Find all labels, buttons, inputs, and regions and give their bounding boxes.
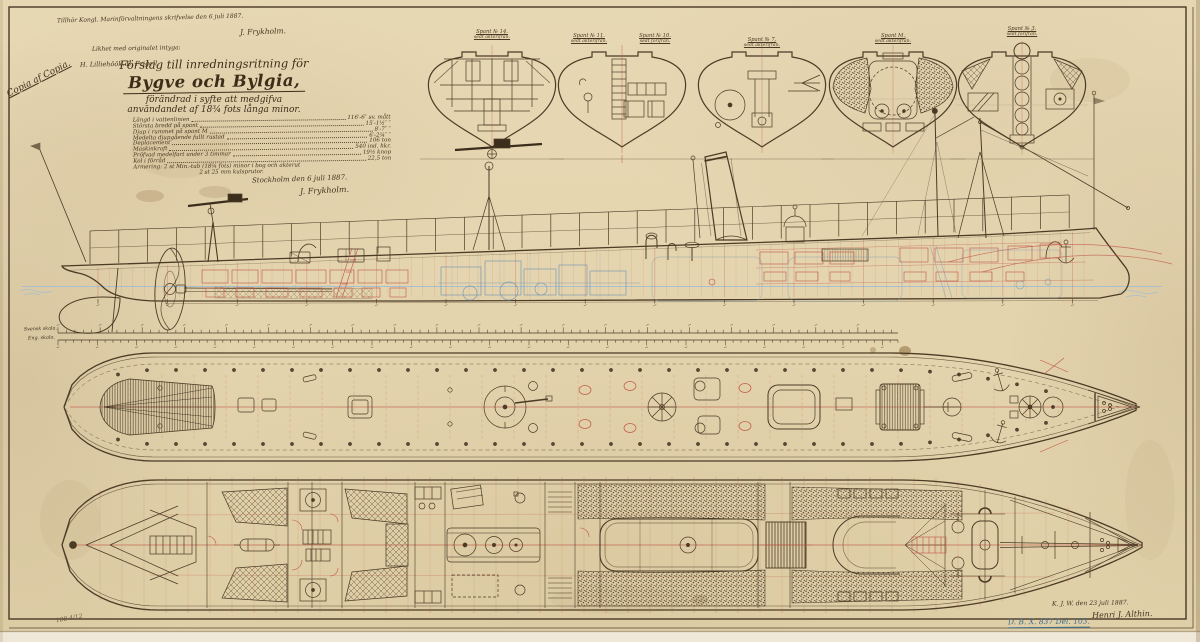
section-label-line2: sedt förifrån. <box>974 32 1070 37</box>
cross-section-5 <box>950 41 1094 159</box>
spec-armament2: 2 st 25 mm kulsprutor. <box>199 169 264 176</box>
archive-number: D. B. X. 837 Del. 103. <box>1008 618 1090 628</box>
coal-bunker <box>792 570 962 603</box>
approval-date: K. J. W. den 23 juli 1887. <box>1052 599 1129 607</box>
berth-lockers <box>222 488 287 526</box>
cross-section-1 <box>420 45 564 159</box>
section-label-5: Spant M. sedt akterifrån. <box>845 33 941 44</box>
deck-plan <box>64 353 1140 461</box>
title-line4: användandet af 18¾ fots långa minor. <box>88 105 340 115</box>
funnel <box>691 152 747 240</box>
section-label-6: Spant № 3. sedt förifrån. <box>974 26 1070 37</box>
anchor-starboard <box>990 418 1012 444</box>
section-label-line2: sedt förifrån. <box>614 39 696 44</box>
companion-stairs <box>303 530 331 561</box>
scale-label-english: Eng. skala. <box>28 336 55 342</box>
blueprint-sheet: Tillhör Kongl. Marinförvaltningens skrif… <box>0 0 1200 642</box>
spec-value: 22,5 ton <box>368 156 392 162</box>
derrick-mast <box>958 118 1130 238</box>
engines <box>447 485 540 597</box>
steering-wheel <box>648 393 676 421</box>
title-block: Förslag till inredningsritning för Bygve… <box>88 57 340 115</box>
cleat <box>303 374 317 382</box>
cleat <box>303 432 317 440</box>
stern-davit <box>298 244 316 262</box>
lower-deck-plan <box>62 477 1142 613</box>
scale-rulers <box>57 324 898 347</box>
coal-bunker <box>578 484 765 520</box>
cross-section-4 <box>821 45 965 159</box>
scale-label-swedish: Svensk skala. <box>24 326 57 333</box>
fore-ladder <box>912 537 946 553</box>
capstan <box>1019 396 1041 418</box>
specifications-table: Längd i vattenlinien116′-6″ sv. mått Stö… <box>133 114 392 176</box>
section-label-3: Spant № 10. sedt förifrån. <box>614 33 696 44</box>
machine-gun-aft <box>188 194 248 262</box>
conning-dome <box>784 205 806 242</box>
top-signature: J. Frykholm. <box>240 27 286 37</box>
interior-machinery-blue <box>438 246 1062 301</box>
coal-bunker <box>792 487 962 520</box>
coal-bunker <box>578 570 765 606</box>
section-label-1: Spant № 14. sedt akterifrån. <box>444 29 540 40</box>
section-label-line2: sedt akterifrån. <box>444 35 540 40</box>
berth-lockers <box>222 564 287 602</box>
stern-flagstaff <box>40 150 86 262</box>
machine-gun-forward <box>455 139 542 250</box>
section-label-line2: sedt akterifrån. <box>714 43 810 48</box>
title-line3: förändrad i syfte att medgifva <box>88 95 340 105</box>
section-label-line2: sedt akterifrån. <box>845 39 941 44</box>
section-label-4: Spant № 7. sedt akterifrån. <box>714 37 810 48</box>
boiler-outline <box>652 257 762 301</box>
hatch <box>698 416 720 434</box>
engine-skylight-plan <box>876 384 948 430</box>
cross-section-3 <box>690 45 834 159</box>
boiler-outline <box>788 257 902 301</box>
mainmast <box>862 108 974 236</box>
anchor-port <box>989 366 1011 392</box>
stoker-steps <box>548 492 572 512</box>
ship-names: Bygve och Bylgia, <box>123 71 306 95</box>
deck-fittings <box>100 358 1140 452</box>
cross-section-2 <box>550 45 694 163</box>
